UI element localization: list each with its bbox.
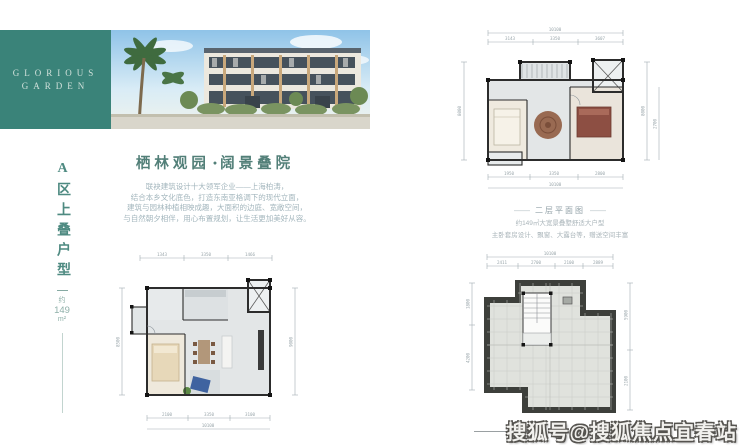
side-label-divider bbox=[57, 290, 68, 291]
svg-text:10100: 10100 bbox=[202, 423, 215, 428]
svg-text:2800: 2800 bbox=[595, 171, 606, 176]
svg-text:1950: 1950 bbox=[504, 171, 515, 176]
svg-text:2100: 2100 bbox=[564, 260, 575, 265]
intro-line: 联袂建筑设计十大领军企业——上海柏涛， bbox=[112, 182, 322, 193]
svg-text:8000: 8000 bbox=[641, 105, 646, 116]
caption-title-text: 二层平面图 bbox=[535, 205, 585, 216]
svg-text:2700: 2700 bbox=[653, 118, 658, 129]
svg-text:10100: 10100 bbox=[544, 251, 557, 256]
svg-text:2411: 2411 bbox=[497, 260, 508, 265]
svg-text:3350: 3350 bbox=[550, 36, 561, 41]
headline-right: 阔景叠院 bbox=[220, 156, 294, 172]
unit-type-title: A区上叠户型 bbox=[52, 161, 72, 282]
kitchen-island bbox=[222, 336, 232, 368]
svg-text:5900: 5900 bbox=[624, 309, 629, 320]
brand-name-line1: GLORIOUS bbox=[13, 67, 99, 80]
intro-line: 建筑与园林种植相映成趣，大面积的边庭、宽敞空间， bbox=[112, 203, 322, 214]
svg-text:1800: 1800 bbox=[466, 298, 471, 309]
svg-text:2889: 2889 bbox=[593, 260, 604, 265]
floorplan-roof-terrace: 10100 2411 2700 2100 2889 1800 4200 5900… bbox=[450, 245, 740, 435]
svg-text:3350: 3350 bbox=[549, 171, 560, 176]
svg-text:8500: 8500 bbox=[116, 336, 121, 347]
stair-core bbox=[522, 292, 553, 347]
second-floor-caption-title: —— 二层平面图 —— bbox=[465, 205, 655, 216]
plant bbox=[183, 387, 191, 395]
tatami-round-table bbox=[534, 111, 562, 139]
svg-text:3350: 3350 bbox=[201, 252, 212, 257]
floorplan-second-floor: 10100 3143 3350 3607 8000 8000 2700 1950… bbox=[450, 25, 740, 210]
building-photo bbox=[111, 30, 370, 129]
caption-dash: —— bbox=[514, 206, 530, 215]
side-vertical-rule bbox=[62, 333, 63, 413]
svg-text:3607: 3607 bbox=[595, 36, 606, 41]
caption-dash: —— bbox=[590, 206, 606, 215]
svg-text:10100: 10100 bbox=[549, 182, 562, 187]
second-floor-caption: —— 二层平面图 —— 约149㎡大宽景叠墅舒适大户型 主卧套房设计、飘窗、大露… bbox=[465, 205, 655, 240]
building-photo-art bbox=[111, 30, 370, 129]
area-value: 149 bbox=[54, 305, 70, 316]
dining-set bbox=[193, 340, 215, 364]
brand-card: GLORIOUS GARDEN bbox=[0, 30, 111, 129]
svg-text:10100: 10100 bbox=[549, 27, 562, 32]
svg-text:2100: 2100 bbox=[624, 375, 629, 386]
bed-guest bbox=[152, 344, 179, 381]
svg-text:2100: 2100 bbox=[162, 412, 173, 417]
watermark: 搜狐号@搜狐焦点宜春站 bbox=[506, 416, 737, 445]
floorplan-first-floor: 1343 3350 1466 8500 9000 2100 3350 3100 … bbox=[110, 250, 325, 445]
headline: 栖林观园●阔景叠院 bbox=[122, 152, 308, 173]
intro-paragraph: 联袂建筑设计十大领军企业——上海柏涛， 结合本乡文化底色，打造东南亚格调下的现代… bbox=[112, 182, 322, 224]
intro-line: 结合本乡文化底色，打造东南亚格调下的现代立面， bbox=[112, 193, 322, 204]
svg-text:3350: 3350 bbox=[204, 412, 215, 417]
headline-dot-icon: ● bbox=[213, 159, 217, 167]
svg-text:2700: 2700 bbox=[531, 260, 542, 265]
svg-text:9000: 9000 bbox=[289, 336, 294, 347]
area-unit: m² bbox=[58, 316, 66, 324]
svg-text:3100: 3100 bbox=[245, 412, 256, 417]
brand-name-line2: GARDEN bbox=[22, 80, 90, 93]
bed-master bbox=[577, 107, 611, 137]
svg-text:1466: 1466 bbox=[245, 252, 256, 257]
bed-secondary bbox=[494, 109, 520, 145]
caption-line: 主卧套房设计、飘窗、大露台等，赠送空间丰富 bbox=[465, 231, 655, 240]
svg-text:8000: 8000 bbox=[457, 105, 462, 116]
caption-line: 约149㎡大宽景叠墅舒适大户型 bbox=[465, 219, 655, 228]
headline-left: 栖林观园 bbox=[136, 156, 210, 172]
rooftop-equipment bbox=[563, 297, 572, 304]
area-approx-label: 约 bbox=[59, 296, 66, 305]
svg-text:4200: 4200 bbox=[466, 352, 471, 363]
poster-page: GLORIOUS GARDEN bbox=[0, 0, 740, 445]
intro-line: 与自然朝夕相伴，用心布置规划，让生活更加美好从容。 bbox=[112, 214, 322, 225]
unit-type-side-label: A区上叠户型 约 149 m² bbox=[46, 161, 78, 413]
svg-text:1343: 1343 bbox=[157, 252, 168, 257]
svg-text:3143: 3143 bbox=[505, 36, 516, 41]
tv-wall bbox=[258, 330, 264, 370]
